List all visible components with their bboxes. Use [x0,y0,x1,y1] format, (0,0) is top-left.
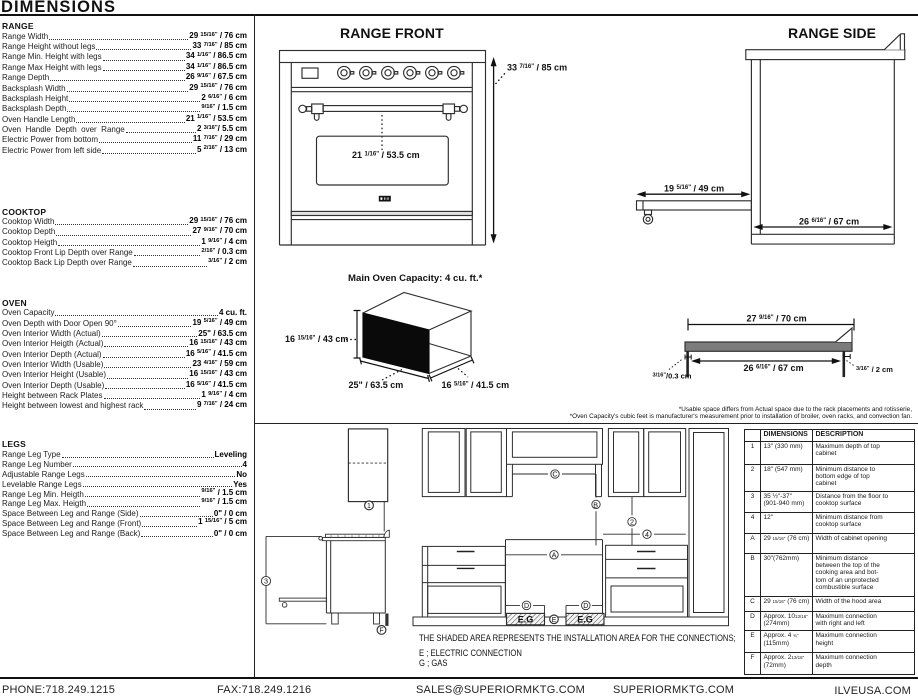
svg-text:2: 2 [630,517,634,526]
svg-text:26 6/16" / 67 cm: 26 6/16" / 67 cm [744,363,804,373]
svg-text:21 1/16" / 53.5 cm: 21 1/16" / 53.5 cm [352,150,420,160]
svg-text:1: 1 [367,503,371,510]
svg-text:27 9/16" / 70 cm: 27 9/16" / 70 cm [747,314,807,324]
svg-text:33 7/16" / 85 cm: 33 7/16" / 85 cm [507,63,567,73]
svg-text:A: A [552,550,557,559]
svg-text:4: 4 [645,530,649,539]
svg-text:16 5/16" / 41.5 cm: 16 5/16" / 41.5 cm [442,380,510,390]
svg-text:3/16"/0.3 cm: 3/16"/0.3 cm [653,372,692,381]
svg-text:D: D [524,603,529,610]
svg-text:16 15/16" / 43 cm: 16 15/16" / 43 cm [285,334,348,344]
svg-text:E.G: E.G [577,614,593,624]
svg-text:25" / 63.5 cm: 25" / 63.5 cm [349,380,404,390]
svg-text:3: 3 [264,577,268,586]
svg-text:3/16" / 2 cm: 3/16" / 2 cm [856,365,893,374]
svg-text:19 5/16" / 49 cm: 19 5/16" / 49 cm [664,183,724,193]
svg-text:E: E [552,617,557,624]
svg-text:F: F [379,627,383,634]
svg-text:E.G: E.G [518,614,534,624]
svg-text:D: D [583,603,588,610]
svg-text:B: B [593,500,598,509]
svg-text:C: C [552,470,557,479]
svg-text:26 6/16" / 67 cm: 26 6/16" / 67 cm [799,216,859,226]
